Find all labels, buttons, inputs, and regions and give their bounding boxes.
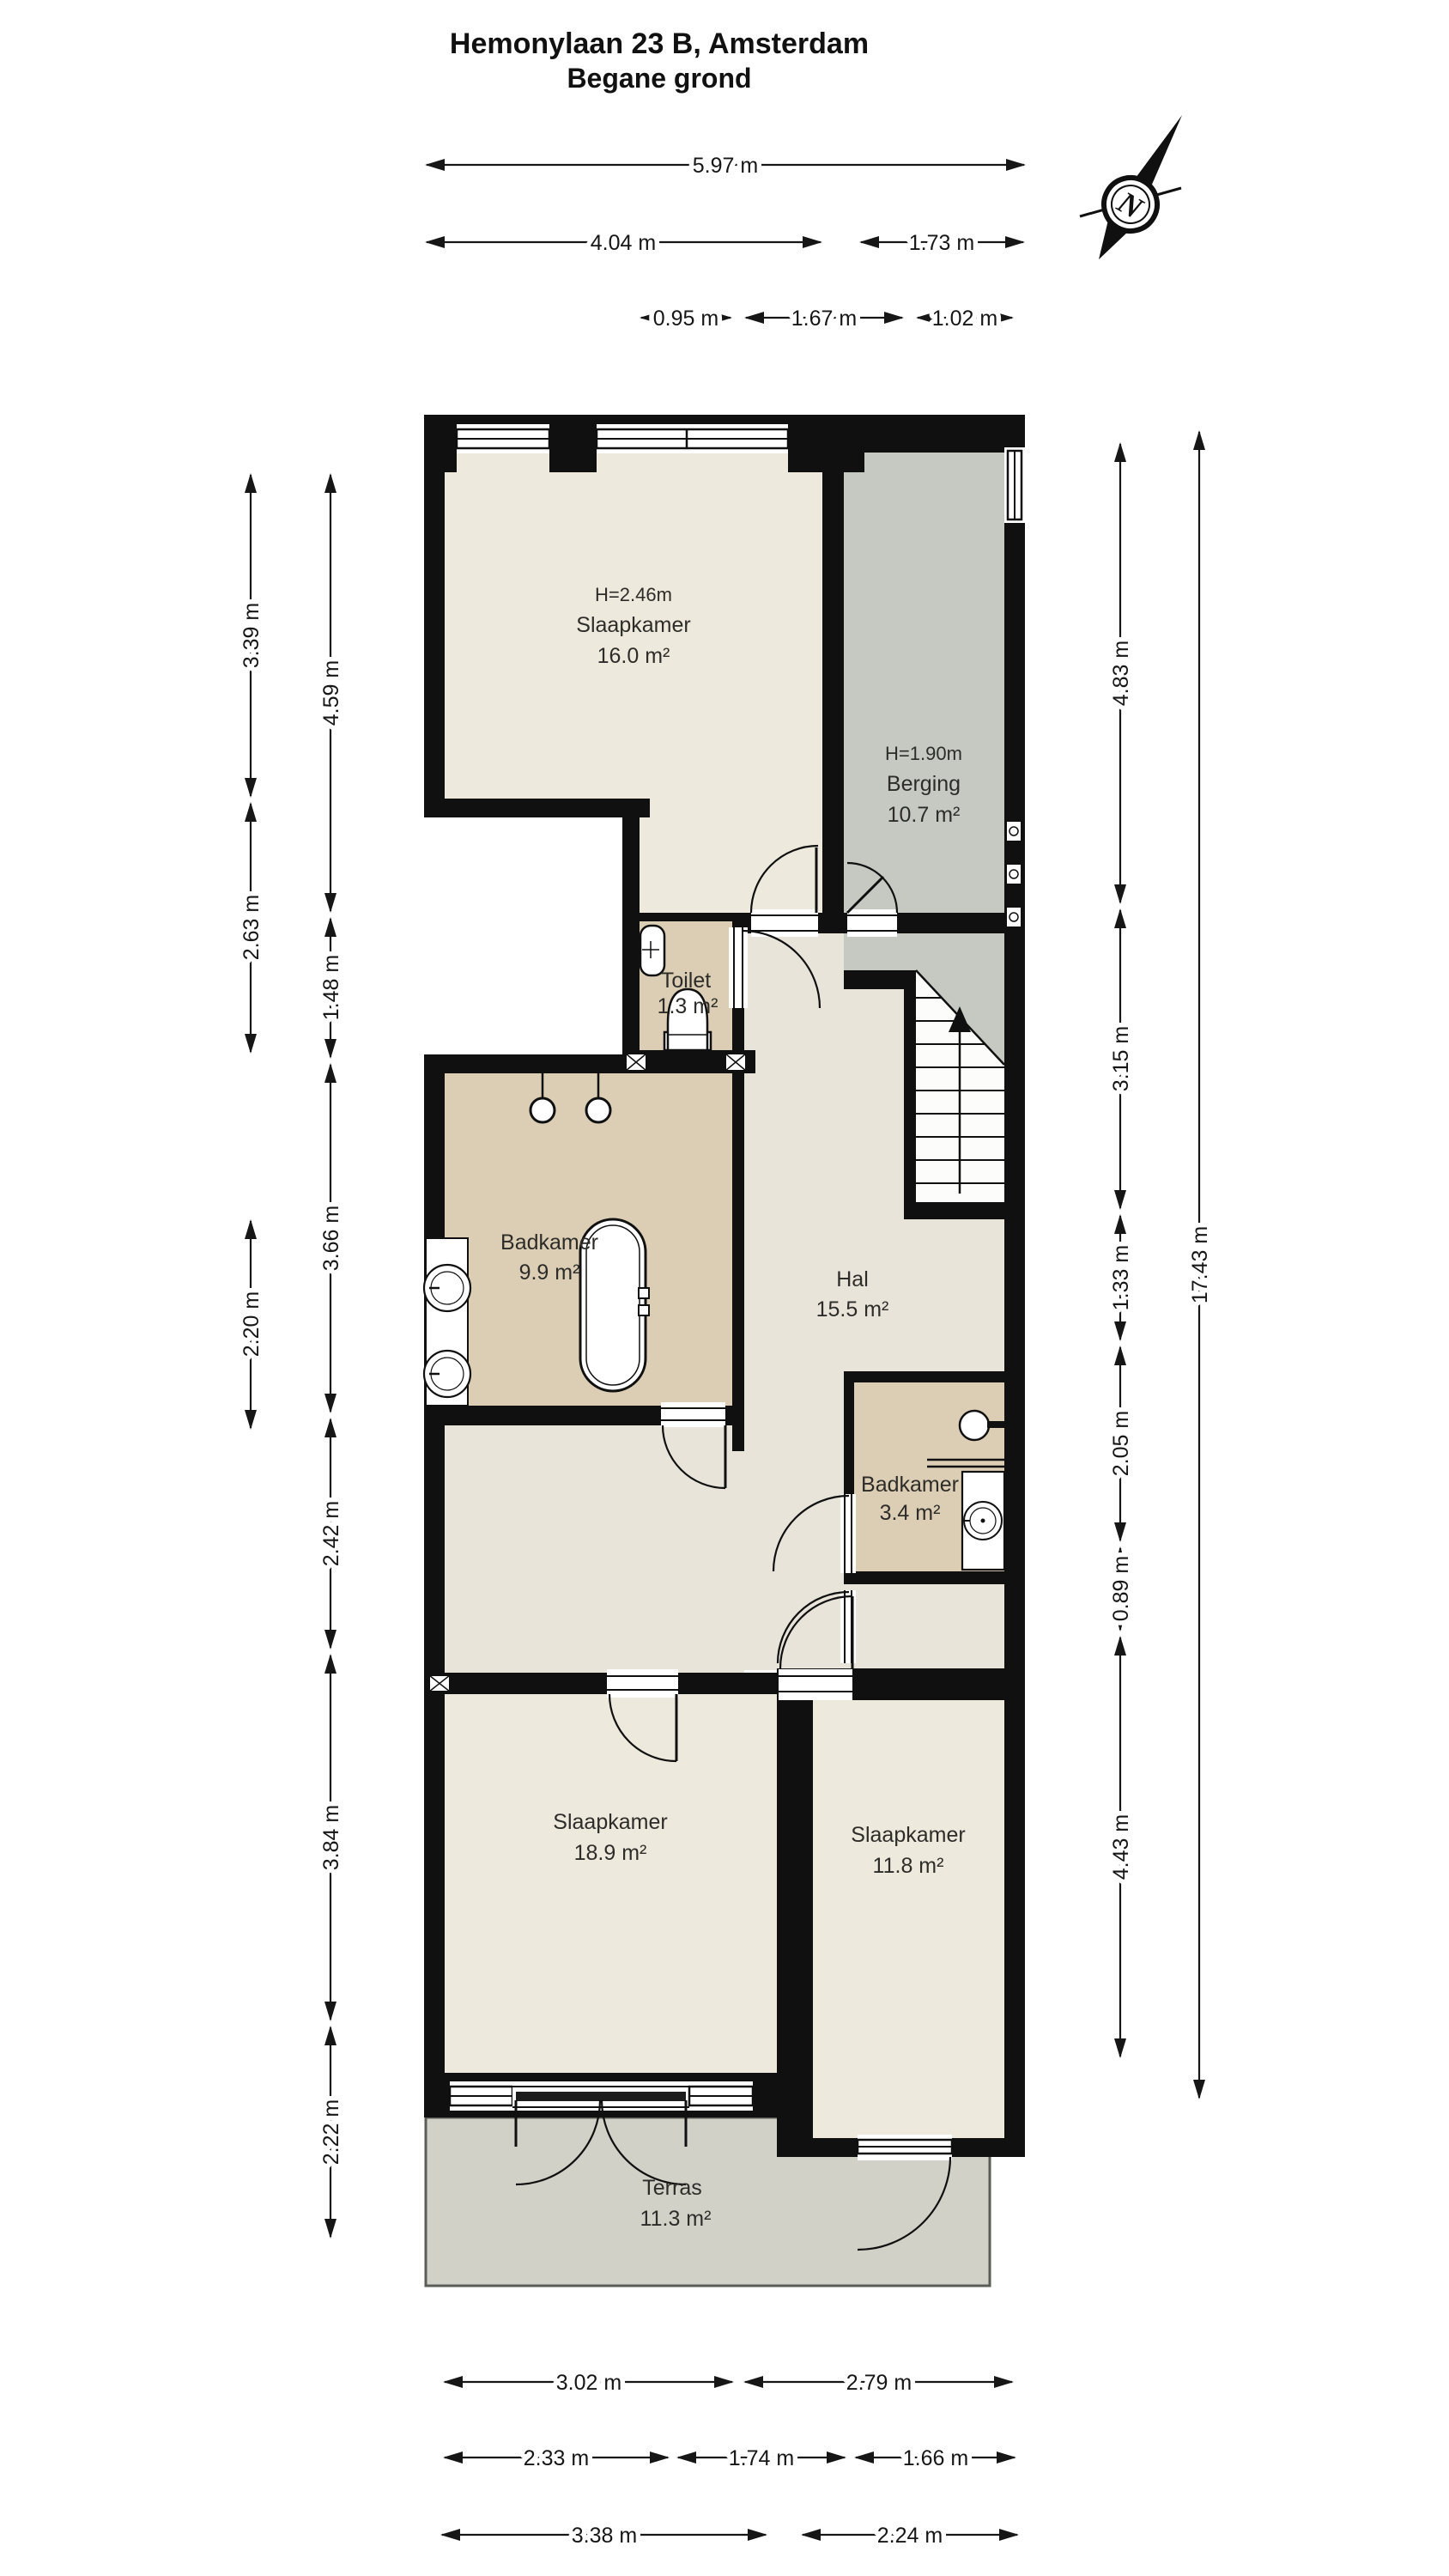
room-label-height: H=2.46m [595,584,672,605]
floorplan-drawing: Hemonylaan 23 B, Amsterdam Begane grond … [0,0,1449,2576]
dim-label: 2.33 m [524,2446,589,2470]
dim-top-stairs: 1.02 m [918,307,1012,331]
dim-top-right: 1.73 m [861,231,1023,255]
room-label-area: 9.9 m² [519,1261,580,1285]
dim-label: 1.66 m [903,2446,968,2470]
page-subtitle: Begane grond [567,63,751,94]
window-terras-left-icon [450,2081,512,2111]
room-label-name: Berging [887,772,961,796]
dim-label: 3.15 m [1109,1026,1133,1091]
dim-left-inner-2: 1.48 m [319,919,343,1057]
dim-right-inner-3: 1.33 m [1109,1216,1133,1340]
dim-label: 3.02 m [556,2371,621,2395]
hal-floor-nook [744,1584,1004,1668]
room-label-area: 16.0 m² [597,644,670,668]
slaapkamer-189-floor [445,1694,777,2073]
window-terras-right-icon [689,2081,753,2111]
room-label-name: Badkamer [500,1230,598,1255]
dim-label: 0.95 m [653,307,718,331]
dim-label: 2.05 m [1109,1411,1133,1476]
room-label-name: Toilet [661,969,711,993]
dim-label: 3.84 m [319,1805,343,1870]
dim-left-inner-4: 2.42 m [319,1419,343,1648]
slaapkamer-118-floor [813,1700,1004,2138]
dim-label: 2.79 m [846,2371,912,2395]
dim-label: 2.42 m [319,1501,343,1566]
dim-label: 1.48 m [319,955,343,1020]
room-label-name: Badkamer [861,1473,959,1497]
dim-top-left: 4.04 m [427,231,821,255]
dim-right-inner-5: 0.89 m [1109,1548,1133,1630]
dim-label: 1.02 m [932,307,997,331]
room-label-area: 15.5 m² [816,1297,889,1321]
dim-right-inner-4: 2.05 m [1109,1347,1133,1540]
room-label-area: 18.9 m² [574,1841,647,1865]
dim-label: 1.74 m [729,2446,794,2470]
dim-right-outer-1: 17.43 m [1188,432,1212,2098]
page-title: Hemonylaan 23 B, Amsterdam [450,27,869,60]
compass-north-icon: N [1076,102,1205,273]
dim-left-inner-1: 4.59 m [319,475,343,911]
dim-label: 3.39 m [239,603,264,668]
dim-bottom-r2-a: 2.33 m [445,2446,668,2470]
dim-left-inner-3: 3.66 m [319,1065,343,1412]
room-label-area: 10.7 m² [888,803,961,827]
room-label-area: 11.3 m² [640,2207,712,2231]
dim-label: 3.66 m [319,1206,343,1271]
dim-label: 2.24 m [877,2524,943,2548]
dim-label: 2.22 m [319,2099,343,2165]
dim-label: 17.43 m [1188,1226,1212,1303]
dim-label: 4.83 m [1109,641,1133,706]
dim-label: 1.33 m [1109,1245,1133,1310]
dim-label: 4.43 m [1109,1814,1133,1880]
dim-right-inner-2: 3.15 m [1109,910,1133,1208]
room-label-name: Slaapkamer [553,1810,667,1834]
dim-label: 2.20 m [239,1291,264,1357]
room-label-area: 3.4 m² [880,1501,941,1525]
room-floors [426,434,1004,2286]
washbasin-icon [424,1238,470,1406]
dim-label: 4.04 m [591,231,656,255]
dim-left-outer-2: 2.63 m [239,804,264,1052]
hal-floor-right [904,1219,1004,1371]
dim-top-width: 5.97 m [427,154,1024,178]
window-top-left-icon [457,424,549,453]
dim-right-inner-1: 4.83 m [1109,444,1133,902]
meter-box-icon [1006,821,1022,927]
dim-right-inner-6: 4.43 m [1109,1637,1133,2057]
floorplan-page: Hemonylaan 23 B, Amsterdam Begane grond … [0,0,1449,2576]
dim-top-hal: 1.67 m [746,307,902,331]
hal-floor-lower [445,1425,744,1673]
window-top-right-icon [597,424,788,453]
dim-label: 2.63 m [239,895,264,960]
dim-label: 1.73 m [909,231,974,255]
dim-top-toilet: 0.95 m [641,307,731,331]
room-label-area: 11.8 m² [873,1854,944,1878]
room-label-name: Slaapkamer [576,613,690,637]
dim-bottom-r2-b: 1.74 m [678,2446,845,2470]
dim-label: 5.97 m [693,154,758,178]
dim-left-inner-6: 2.22 m [319,2027,343,2237]
dim-label: 0.89 m [1109,1556,1133,1621]
dim-left-inner-5: 3.84 m [319,1656,343,2020]
shower-icon [962,1472,1004,1570]
dim-bottom-r3-b: 2.24 m [803,2524,1017,2548]
room-label-name: Terras [642,2176,701,2200]
dim-bottom-r1-b: 2.79 m [745,2371,1012,2395]
dim-label: 1.67 m [791,307,857,331]
dim-left-outer-3: 2.20 m [239,1221,264,1428]
dim-bottom-r3-a: 3.38 m [442,2524,766,2548]
dim-label: 3.38 m [572,2524,637,2548]
room-label-area: 1.3 m² [658,994,718,1018]
dim-bottom-r2-c: 1.66 m [856,2446,1015,2470]
dim-bottom-r1-a: 3.02 m [445,2371,732,2395]
window-berging-icon [1004,447,1025,523]
room-label-height: H=1.90m [885,743,962,764]
dim-label: 4.59 m [319,660,343,726]
dim-left-outer-1: 3.39 m [239,475,264,796]
room-label-name: Slaapkamer [851,1823,965,1847]
room-label-name: Hal [836,1267,869,1291]
